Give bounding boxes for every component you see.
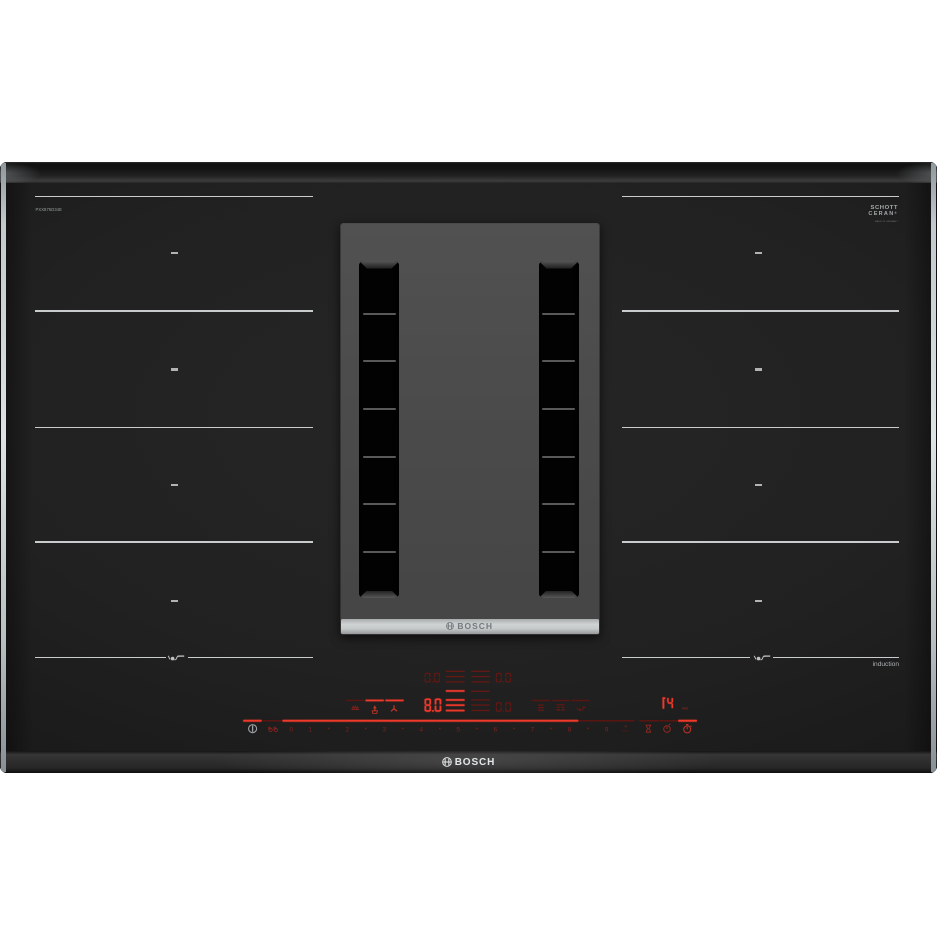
svg-text:3: 3 — [382, 727, 386, 734]
svg-text:4: 4 — [419, 727, 423, 734]
svg-text:2: 2 — [345, 727, 349, 734]
svg-text:8: 8 — [568, 727, 572, 734]
svg-text:min: min — [682, 706, 688, 710]
svg-text:0: 0 — [290, 727, 294, 734]
svg-text:boost: boost — [622, 728, 630, 732]
svg-text:9: 9 — [605, 727, 609, 734]
svg-text:6: 6 — [494, 727, 498, 734]
svg-text:7: 7 — [531, 727, 535, 734]
svg-text:5: 5 — [456, 727, 460, 734]
svg-text:1: 1 — [308, 727, 312, 734]
